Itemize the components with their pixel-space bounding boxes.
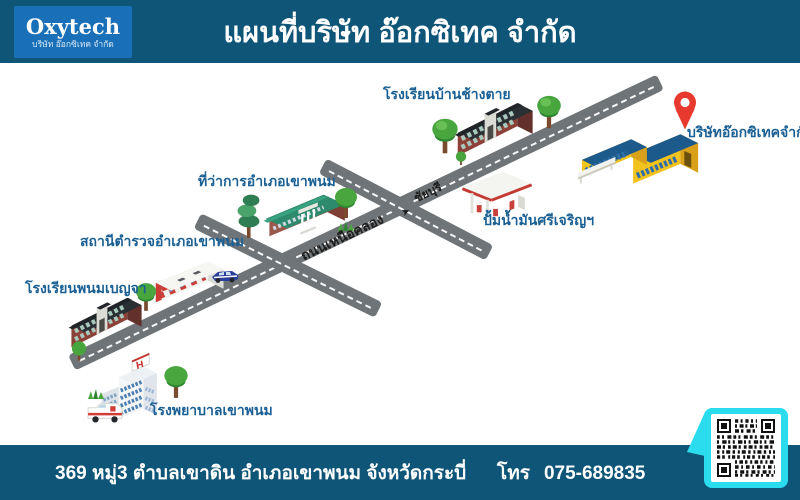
ambulance-icon — [86, 399, 124, 425]
qr-code-frame — [711, 414, 781, 482]
qr-badge — [704, 408, 788, 488]
qr-code-icon — [717, 419, 775, 477]
tree-icon — [333, 183, 359, 223]
bush-icon — [452, 150, 470, 166]
header-bar: Oxytech บริษัท อ๊อกซิเทค จำกัด แผนที่บริ… — [0, 0, 800, 63]
police-car-icon — [210, 264, 240, 284]
gas-station-label: ปั้มน้ำมันศรีเจริญฯ — [483, 212, 594, 230]
company-label: บริษัทอ๊อกซิเทคจำกัด — [687, 124, 800, 142]
phone-number: 075-689835 — [544, 463, 645, 484]
phone-text: โทร075-689835 — [497, 458, 645, 488]
page-title: แผนที่บริษัท อ๊อกซิเทค จำกัด — [223, 9, 576, 55]
logo-title: Oxytech — [26, 16, 120, 37]
grass-icon — [86, 389, 106, 399]
small-tree-icon — [70, 340, 88, 362]
district-office-label: ที่ว่าการอำเภอเขาพนม — [198, 173, 336, 191]
tree-icon — [535, 90, 563, 134]
map-area: ถนนเหนือคลอง ชัยบุรี ➤ — [0, 63, 800, 445]
company-map-poster: ถนนเหนือคลอง ชัยบุรี ➤ — [0, 0, 800, 500]
address-text: 369 หมู่3 ตำบลเขาดิน อำเภอเขาพนม จังหวัด… — [55, 458, 466, 488]
tree-icon — [162, 364, 190, 400]
school-changtai-label: โรงเรียนบ้านช้างตาย — [383, 86, 511, 104]
location-pin-icon — [670, 88, 700, 133]
school-phanombenja-label: โรงเรียนพนมเบญจา — [25, 280, 147, 298]
logo-subtitle: บริษัท อ๊อกซิเทค จำกัด — [32, 40, 114, 49]
phone-label: โทร — [497, 463, 530, 484]
qr-badge-tail — [687, 410, 705, 460]
police-station-label: สถานีตำรวจอำเภอเขาพนม — [80, 233, 244, 251]
footer-bar: 369 หมู่3 ตำบลเขาดิน อำเภอเขาพนม จังหวัด… — [0, 445, 800, 500]
company-logo: Oxytech บริษัท อ๊อกซิเทค จำกัด — [14, 6, 132, 58]
hospital-label: โรงพยาบาลเขาพนม — [150, 402, 273, 420]
